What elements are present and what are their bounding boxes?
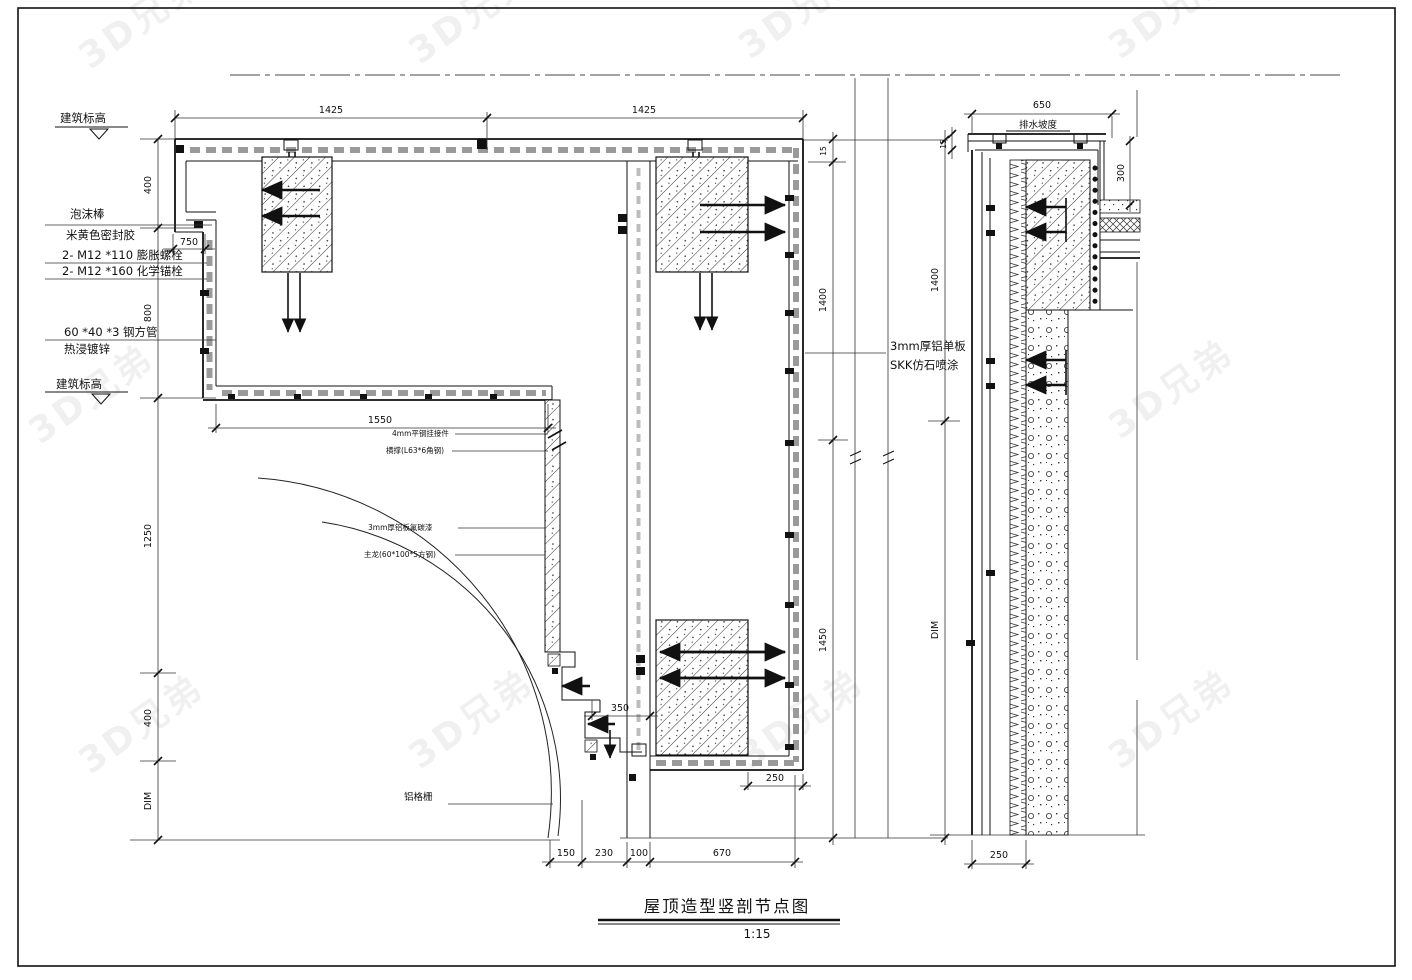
dim-far-dim: DIM xyxy=(930,621,941,639)
lower-horizontal-panel xyxy=(203,386,552,400)
dim-bottom-230: 230 xyxy=(595,848,613,859)
dim-left-400b: 400 xyxy=(143,709,154,727)
central-mullion xyxy=(618,161,650,838)
dim-detail-300: 300 xyxy=(1116,164,1127,182)
dim-detail-250: 250 xyxy=(990,850,1008,861)
watermark: 3D兄弟 xyxy=(1102,0,1243,67)
label-elevation-top: 建筑标高 xyxy=(60,111,106,125)
label-elevation-bottom: 建筑标高 xyxy=(56,377,102,391)
dim-bottom-150: 150 xyxy=(557,848,575,859)
label-brace: 横撑(L63*6角钢) xyxy=(386,445,444,455)
cad-drawing-sheet: 3D兄弟 3D兄弟 3D兄弟 3D兄弟 3D兄弟 3D兄弟 3D兄弟 3D兄弟 … xyxy=(0,0,1412,980)
roof-detail-drawing: 3D兄弟 3D兄弟 3D兄弟 3D兄弟 3D兄弟 3D兄弟 3D兄弟 3D兄弟 … xyxy=(0,0,1412,980)
watermark: 3D兄弟 xyxy=(72,0,213,77)
label-keel: 主龙(60*100*5方钢) xyxy=(364,549,436,559)
label-skk: SKK仿石喷涂 xyxy=(890,358,959,372)
concrete-block-top-right xyxy=(656,157,785,330)
label-alu-sheet: 3mm厚铝单板 xyxy=(890,339,966,353)
label-clip: 4mm平钢挂接件 xyxy=(392,428,449,438)
parapet-concrete xyxy=(1026,160,1090,310)
curved-ceiling-lines xyxy=(258,478,560,838)
watermark: 3D兄弟 xyxy=(1102,332,1243,448)
label-galvanized: 热浸镀锌 xyxy=(64,342,110,356)
watermark: 3D兄弟 xyxy=(72,667,213,783)
concrete-block-top-left xyxy=(262,157,332,332)
drawing-title: 屋顶造型竖剖节点图 xyxy=(644,897,811,916)
dim-right-1400: 1400 xyxy=(818,288,829,312)
label-bolt2: 2- M12 *160 化学锚栓 xyxy=(62,264,183,278)
label-slope: 排水坡度 xyxy=(1019,119,1058,131)
dim-250a: 250 xyxy=(766,773,784,784)
dim-right-15: 15 xyxy=(819,146,828,156)
label-alu-paint: 3mm厚铝板氟碳漆 xyxy=(368,522,433,532)
label-grille: 铝格栅 xyxy=(404,791,433,803)
dim-left-1250: 1250 xyxy=(143,524,154,548)
dim-right-1450: 1450 xyxy=(818,628,829,652)
dim-bottom-100: 100 xyxy=(630,848,648,859)
dim-detail-15: 15 xyxy=(939,139,948,149)
dim-far-1400: 1400 xyxy=(930,268,941,292)
label-steel-tube: 60 *40 *3 钢方管 xyxy=(64,325,158,339)
watermark: 3D兄弟 xyxy=(1102,662,1243,778)
wall-detail-view xyxy=(930,90,1145,835)
insulation-layer xyxy=(1010,160,1026,835)
label-bolt1: 2- M12 *110 膨胀螺栓 xyxy=(62,248,183,262)
dim-left-dim: DIM xyxy=(143,792,154,810)
section-break-lines xyxy=(850,78,894,838)
dim-left-800: 800 xyxy=(143,304,154,322)
watermark: 3D兄弟 xyxy=(402,0,543,72)
dim-top-right: 1425 xyxy=(632,105,656,116)
title-block: 屋顶造型竖剖节点图 1:15 xyxy=(598,897,840,941)
dim-750: 750 xyxy=(180,237,198,248)
drawing-scale: 1:15 xyxy=(744,927,771,941)
dim-bottom-670: 670 xyxy=(713,848,731,859)
dim-top-left: 1425 xyxy=(319,105,343,116)
wall-concrete xyxy=(1026,310,1068,835)
dim-detail-650: 650 xyxy=(1033,100,1051,111)
watermark: 3D兄弟 xyxy=(402,662,543,778)
label-foam-rod: 泡沫棒 xyxy=(70,207,105,221)
watermark: 3D兄弟 xyxy=(732,0,873,67)
label-sealant: 米黄色密封胶 xyxy=(66,228,135,242)
right-wall xyxy=(785,139,803,770)
dim-1550: 1550 xyxy=(368,415,392,426)
dim-350: 350 xyxy=(611,703,629,714)
annotations-right: 3mm厚铝单板 SKK仿石喷涂 xyxy=(805,339,966,372)
dim-left-400a: 400 xyxy=(143,176,154,194)
